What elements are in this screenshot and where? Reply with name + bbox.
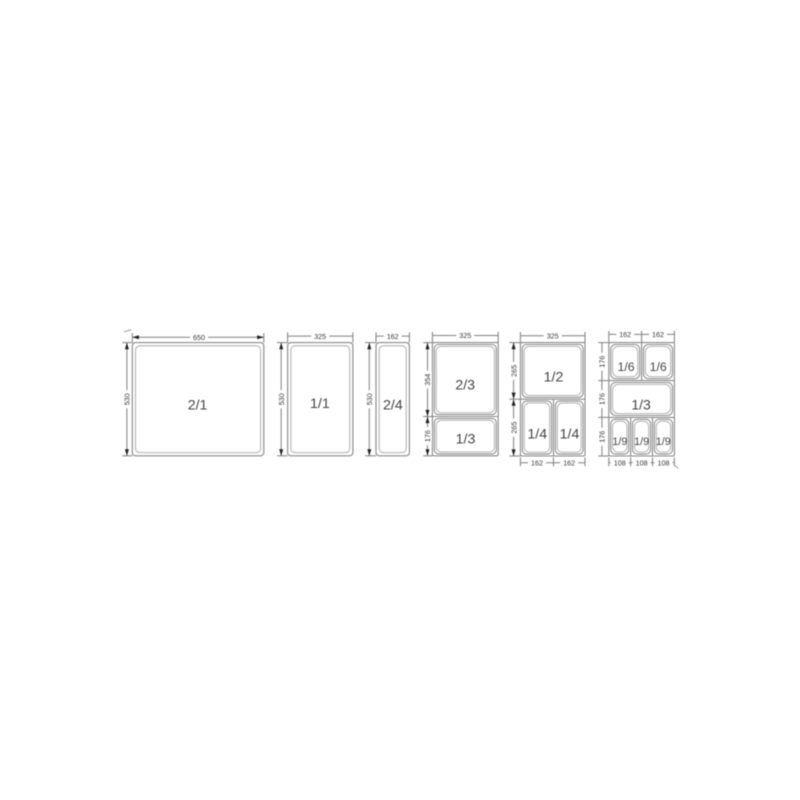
svg-text:1/9: 1/9 <box>634 436 649 448</box>
svg-text:530: 530 <box>365 393 374 405</box>
svg-text:1/9: 1/9 <box>656 436 671 448</box>
svg-text:325: 325 <box>314 332 326 341</box>
svg-text:1/2: 1/2 <box>544 369 564 385</box>
svg-text:530: 530 <box>277 393 286 405</box>
svg-text:530: 530 <box>123 393 132 405</box>
svg-text:162: 162 <box>652 330 664 339</box>
svg-text:1/3: 1/3 <box>631 396 651 412</box>
svg-text:108: 108 <box>658 458 670 467</box>
svg-text:162: 162 <box>531 459 543 468</box>
svg-text:265: 265 <box>509 422 518 434</box>
svg-text:354: 354 <box>423 374 432 386</box>
svg-text:2/1: 2/1 <box>188 398 208 414</box>
svg-text:325: 325 <box>459 331 471 340</box>
svg-text:1/6: 1/6 <box>650 360 667 374</box>
svg-text:176: 176 <box>598 393 607 405</box>
svg-text:176: 176 <box>598 431 607 443</box>
svg-text:108: 108 <box>636 458 648 467</box>
svg-text:265: 265 <box>509 365 518 377</box>
svg-text:325: 325 <box>547 331 559 340</box>
svg-text:1/3: 1/3 <box>456 431 476 447</box>
svg-text:1/6: 1/6 <box>618 360 635 374</box>
svg-text:162: 162 <box>563 459 575 468</box>
svg-text:2/3: 2/3 <box>455 377 475 393</box>
svg-text:650: 650 <box>193 333 205 342</box>
svg-text:2/4: 2/4 <box>383 398 403 414</box>
svg-text:1/9: 1/9 <box>612 436 627 448</box>
svg-text:108: 108 <box>614 458 626 467</box>
svg-text:176: 176 <box>598 356 607 368</box>
svg-text:1/4: 1/4 <box>527 426 547 442</box>
svg-text:176: 176 <box>423 430 432 442</box>
svg-text:162: 162 <box>387 332 399 341</box>
svg-text:162: 162 <box>619 330 631 339</box>
svg-text:1/4: 1/4 <box>560 426 580 442</box>
svg-text:1/1: 1/1 <box>310 396 330 412</box>
